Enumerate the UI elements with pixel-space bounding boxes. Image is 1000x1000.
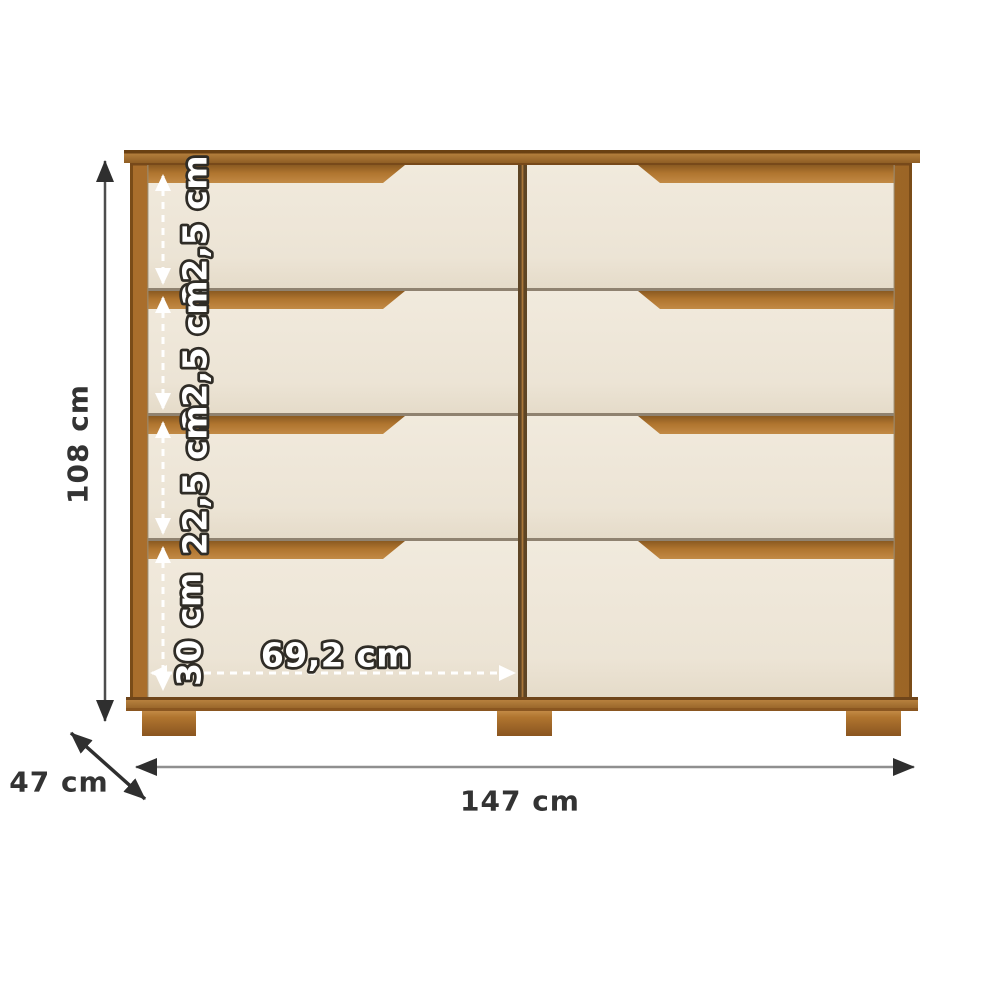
- handle-notch-right: [638, 416, 894, 434]
- left-drawer-edge-line: [147, 165, 149, 697]
- bottom-rail-top-line: [126, 697, 918, 700]
- dresser-diagram-canvas: 108 cm 147 cm 47 cm 22,5 cm 22,5 cm 22,5…: [0, 0, 1000, 1000]
- drawer-front-right: [527, 165, 894, 288]
- drawer-front-right: [527, 291, 894, 413]
- handle-notch-right: [638, 541, 894, 559]
- height-dimension-label: 108 cm: [62, 384, 95, 504]
- top-board-edge-line: [124, 150, 920, 154]
- foot-right: [846, 711, 901, 736]
- dresser: [124, 150, 920, 736]
- right-drawer-edge-line: [893, 165, 895, 697]
- width-dimension-label: 147 cm: [460, 785, 580, 818]
- drawer-front-right: [527, 416, 894, 538]
- bottom-rail: [126, 697, 918, 711]
- foot-left: [142, 711, 196, 736]
- handle-notch-right: [638, 165, 894, 183]
- dimension-diagram: 108 cm 147 cm 47 cm 22,5 cm 22,5 cm 22,5…: [0, 0, 1000, 1000]
- left-edge-line: [130, 163, 133, 698]
- foot-center: [497, 711, 552, 736]
- feet: [142, 711, 901, 736]
- drawer-width-label: 69,2 cm: [261, 636, 411, 675]
- divider-highlight: [522, 165, 524, 697]
- drawer-front-right: [527, 541, 894, 697]
- center-divider: [518, 165, 527, 697]
- row3-height-label: 22,5 cm: [176, 405, 215, 555]
- top-board: [124, 150, 920, 166]
- bottom-rail-bottom-line: [126, 708, 918, 711]
- handle-notch-right: [638, 291, 894, 309]
- right-edge-line: [909, 163, 912, 698]
- depth-dimension-label: 47 cm: [9, 766, 109, 799]
- row4-height-label: 30 cm: [170, 572, 209, 686]
